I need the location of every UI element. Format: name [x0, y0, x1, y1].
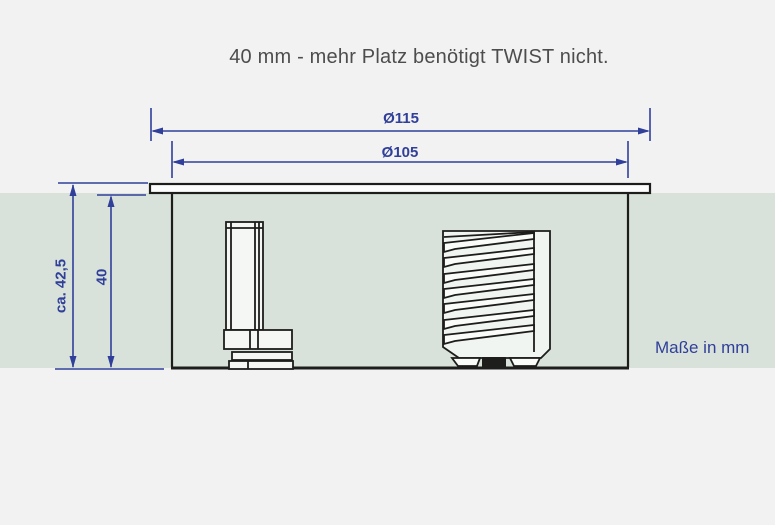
top-plate	[150, 184, 650, 193]
dim-label-total-depth: ca. 42,5	[53, 259, 70, 313]
dimension-lines	[55, 108, 650, 369]
dim-label-recess-depth: 40	[94, 269, 111, 286]
technical-drawing-canvas: 40 mm - mehr Platz benötigt TWIST nicht.…	[0, 0, 775, 525]
units-note: Maße in mm	[655, 338, 749, 358]
page-title: 40 mm - mehr Platz benötigt TWIST nicht.	[229, 46, 609, 69]
dim-label-outer-diameter: Ø115	[383, 110, 419, 127]
plug-module	[224, 222, 293, 369]
clamp-screw	[443, 231, 550, 369]
drawing-svg	[0, 0, 775, 525]
dim-label-inner-diameter: Ø105	[382, 144, 419, 161]
screw-foot	[482, 357, 506, 369]
